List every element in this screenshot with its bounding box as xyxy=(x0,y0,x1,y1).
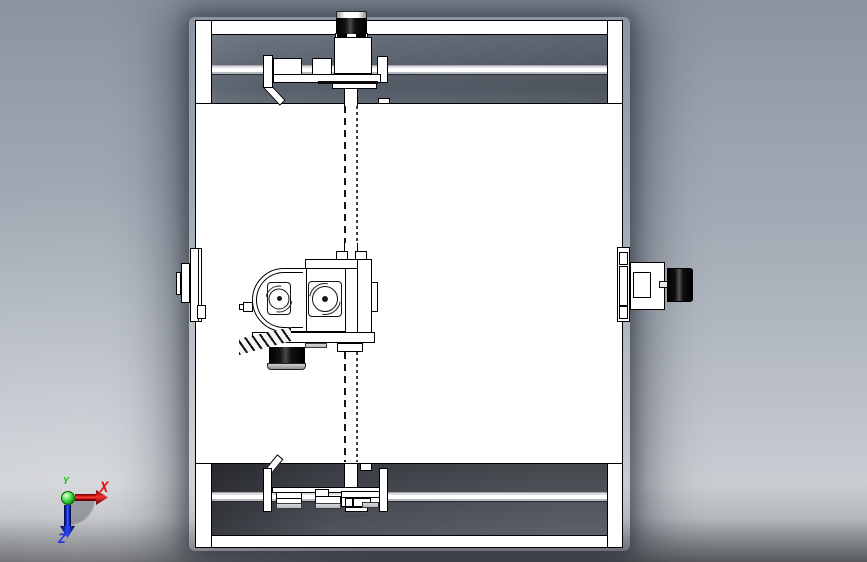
right-bracket-inner xyxy=(633,272,651,298)
x-axis-label: X xyxy=(100,481,108,495)
gantry-plate-edge xyxy=(318,81,378,84)
left-motor-foot xyxy=(197,305,206,319)
leadscrew-lower-solid xyxy=(344,462,358,488)
bottom-carriage-right-post xyxy=(379,468,388,512)
panel-edge-tab xyxy=(378,98,390,104)
leadscrew-centerline-right-upper xyxy=(356,106,358,246)
z-axis-label: Z xyxy=(58,533,66,546)
z-axis-arrow-shaft[interactable] xyxy=(64,505,71,527)
left-block-line xyxy=(277,498,301,499)
right-block-inner-a xyxy=(345,498,353,507)
mid-block-base xyxy=(315,503,341,509)
left-block-base xyxy=(276,503,302,509)
bottom-tab-line xyxy=(345,512,375,513)
extruder-motor-face-left[interactable] xyxy=(267,282,291,315)
carriage-left-nub xyxy=(239,304,244,310)
z-motor-base-notch-left xyxy=(337,34,347,37)
extruder-motor-face-right[interactable] xyxy=(308,281,342,317)
z-motor-base-notch-right xyxy=(356,34,366,37)
extruder-heater-cylinder[interactable] xyxy=(269,347,305,364)
right-motor-cylinder[interactable] xyxy=(667,268,693,302)
leadscrew-centerline-left-lower xyxy=(344,352,346,462)
carriage-left-tab xyxy=(243,302,253,312)
frame-bottom-beam[interactable] xyxy=(211,535,608,548)
leadscrew-sleeve xyxy=(337,343,363,352)
motor-arc-right-b xyxy=(303,277,348,322)
right-motor-flange[interactable] xyxy=(617,247,630,322)
carriage-right-plate[interactable] xyxy=(357,259,372,343)
frame-top-beam[interactable] xyxy=(195,20,623,35)
x-axis-arrow-shaft[interactable] xyxy=(75,494,97,501)
carriage-right-nub xyxy=(371,282,378,312)
y-axis-origin-ball[interactable] xyxy=(61,491,75,505)
y-axis-label: Y xyxy=(63,477,69,487)
leadscrew-centerline-left-upper xyxy=(344,106,346,246)
extruder-heater-cap xyxy=(267,363,306,370)
carriage-under-tab xyxy=(305,343,327,348)
gantry-left-tab xyxy=(263,55,273,88)
right-flange-slot-bottom xyxy=(619,306,628,319)
cad-viewport[interactable]: Y X Z xyxy=(0,0,867,562)
right-flange-slot-mid xyxy=(619,266,628,306)
z-motor-cylinder[interactable] xyxy=(336,18,367,34)
bottom-carriage-left-post xyxy=(263,468,272,512)
leadscrew-lower-tab xyxy=(360,463,372,471)
right-block-base xyxy=(362,502,379,508)
leadscrew-centerline-right-lower xyxy=(356,352,358,462)
z-motor-body[interactable] xyxy=(334,37,372,74)
left-motor-block[interactable] xyxy=(181,263,190,303)
right-flange-slot-top xyxy=(619,252,628,265)
left-motor-nub xyxy=(176,272,181,295)
